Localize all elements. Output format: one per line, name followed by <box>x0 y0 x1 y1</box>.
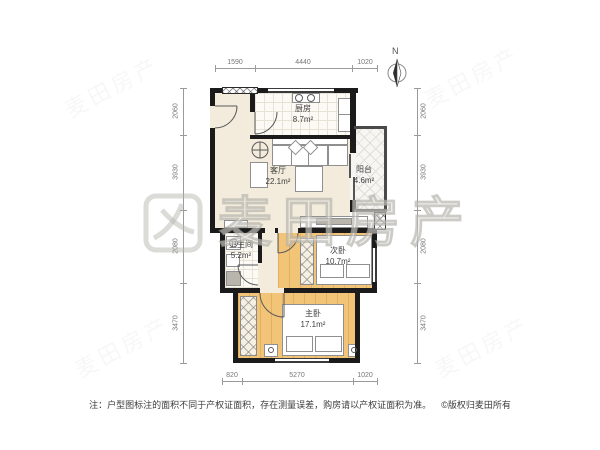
wall-hatch <box>374 212 386 230</box>
wall <box>350 88 356 139</box>
dimension-tick <box>414 135 421 136</box>
dimension-line <box>215 68 378 69</box>
corner-watermark: 麦田房产 <box>59 47 166 124</box>
wall <box>250 93 255 112</box>
room-area: 4.6m² <box>340 176 388 187</box>
footer-note: 注：户型图标注的面积不同于产权证面积，存在测量误差，购房请以产权证面积为准。©版… <box>0 398 600 411</box>
sofa-chaise <box>328 145 348 166</box>
window <box>372 248 377 282</box>
floorplan-canvas: 麦田房产 麦田房产 麦田房产 麦田房产 <box>0 0 600 450</box>
room-area: 22.1m² <box>258 177 298 188</box>
entry-door-gap <box>210 106 215 128</box>
corner-watermark: 麦田房产 <box>419 37 526 114</box>
dimension-value: 3930 <box>173 164 180 180</box>
bath-door-gap <box>258 263 262 288</box>
dimension-tick <box>180 88 187 89</box>
dimension-value: 2080 <box>421 238 428 254</box>
wall <box>298 228 377 233</box>
dimension-tick <box>255 65 256 72</box>
dimension-value: 3930 <box>421 164 428 180</box>
dimension-tick <box>414 363 421 364</box>
shoe-cabinet <box>224 220 248 228</box>
room-area: 17.1m² <box>288 320 338 331</box>
room-name: 次卧 <box>312 246 364 257</box>
entry-floor <box>215 93 250 139</box>
dimension-value: 3470 <box>421 315 428 331</box>
wall <box>233 293 238 363</box>
wall <box>210 228 265 233</box>
room-name: 客厅 <box>258 166 298 177</box>
dimension-tick <box>414 210 421 211</box>
room-name: 主卧 <box>288 309 338 320</box>
wall-hatch <box>222 87 258 94</box>
dimension-value: 1590 <box>227 59 243 66</box>
wall <box>220 288 260 293</box>
wall <box>210 88 215 106</box>
wall <box>350 139 356 153</box>
dimension-tick <box>352 65 353 72</box>
wall <box>284 288 377 293</box>
wall <box>210 128 215 233</box>
dimension-value: 2060 <box>421 103 428 119</box>
tv <box>316 218 352 225</box>
dimension-value: 820 <box>226 372 238 379</box>
room-name: 卫生间 <box>219 240 263 251</box>
room-area: 8.7m² <box>278 115 328 126</box>
corner-watermark: 麦田房产 <box>69 307 176 384</box>
room-area: 5.2m² <box>219 251 263 262</box>
room-area: 10.7m² <box>312 257 364 268</box>
dimension-tick <box>180 283 187 284</box>
dimension-tick <box>353 378 354 385</box>
stove <box>292 93 320 103</box>
room-label-kitchen: 厨房 8.7m² <box>278 104 328 126</box>
north-label: N <box>392 46 399 56</box>
toilet <box>226 271 241 286</box>
dimension-tick <box>180 135 187 136</box>
dimension-value: 1020 <box>357 59 373 66</box>
dimension-tick <box>377 65 378 72</box>
dimension-value: 2080 <box>173 238 180 254</box>
dimension-tick <box>242 378 243 385</box>
balcony-wall <box>354 126 387 129</box>
bed-pillow <box>315 336 342 352</box>
room-name: 厨房 <box>278 104 328 115</box>
dimension-value: 1020 <box>357 372 373 379</box>
window <box>268 88 334 93</box>
room-label-bathroom: 卫生间 5.2m² <box>219 240 263 262</box>
dimension-tick <box>222 378 223 385</box>
room-label-balcony: 阳台 4.6m² <box>340 165 388 187</box>
corridor-opening <box>265 228 275 233</box>
coffee-table <box>295 166 323 192</box>
copyright-text: ©版权归麦田所有 <box>441 400 511 410</box>
corner-watermark: 麦田房产 <box>429 307 536 384</box>
corridor-floor <box>262 233 278 293</box>
dimension-tick <box>414 88 421 89</box>
dimension-value: 5270 <box>289 372 305 379</box>
room-label-master: 主卧 17.1m² <box>288 309 338 331</box>
dimension-tick <box>180 210 187 211</box>
compass-icon <box>386 57 408 91</box>
dimension-line <box>417 88 418 363</box>
wall <box>275 228 278 233</box>
kitchen-door-gap <box>250 112 255 135</box>
dimension-value: 4440 <box>295 59 311 66</box>
nightstand <box>264 344 278 357</box>
dimension-tick <box>180 363 187 364</box>
dimension-tick <box>377 378 378 385</box>
wall <box>355 293 360 358</box>
dimension-tick <box>414 283 421 284</box>
room-name: 阳台 <box>340 165 388 176</box>
room-label-bedroom2: 次卧 10.7m² <box>312 246 364 268</box>
wardrobe <box>240 296 257 356</box>
bed-pillow <box>286 336 313 352</box>
dimension-value: 2060 <box>173 103 180 119</box>
balcony-wall <box>354 209 387 212</box>
dimension-line <box>183 88 184 363</box>
dimension-value: 3470 <box>173 315 180 331</box>
room-label-living: 客厅 22.1m² <box>258 166 298 188</box>
wall <box>250 135 350 139</box>
dimension-tick <box>215 65 216 72</box>
disclaimer-text: 注：户型图标注的面积不同于产权证面积，存在测量误差，购房请以产权证面积为准。 <box>89 400 431 410</box>
window <box>275 358 329 363</box>
